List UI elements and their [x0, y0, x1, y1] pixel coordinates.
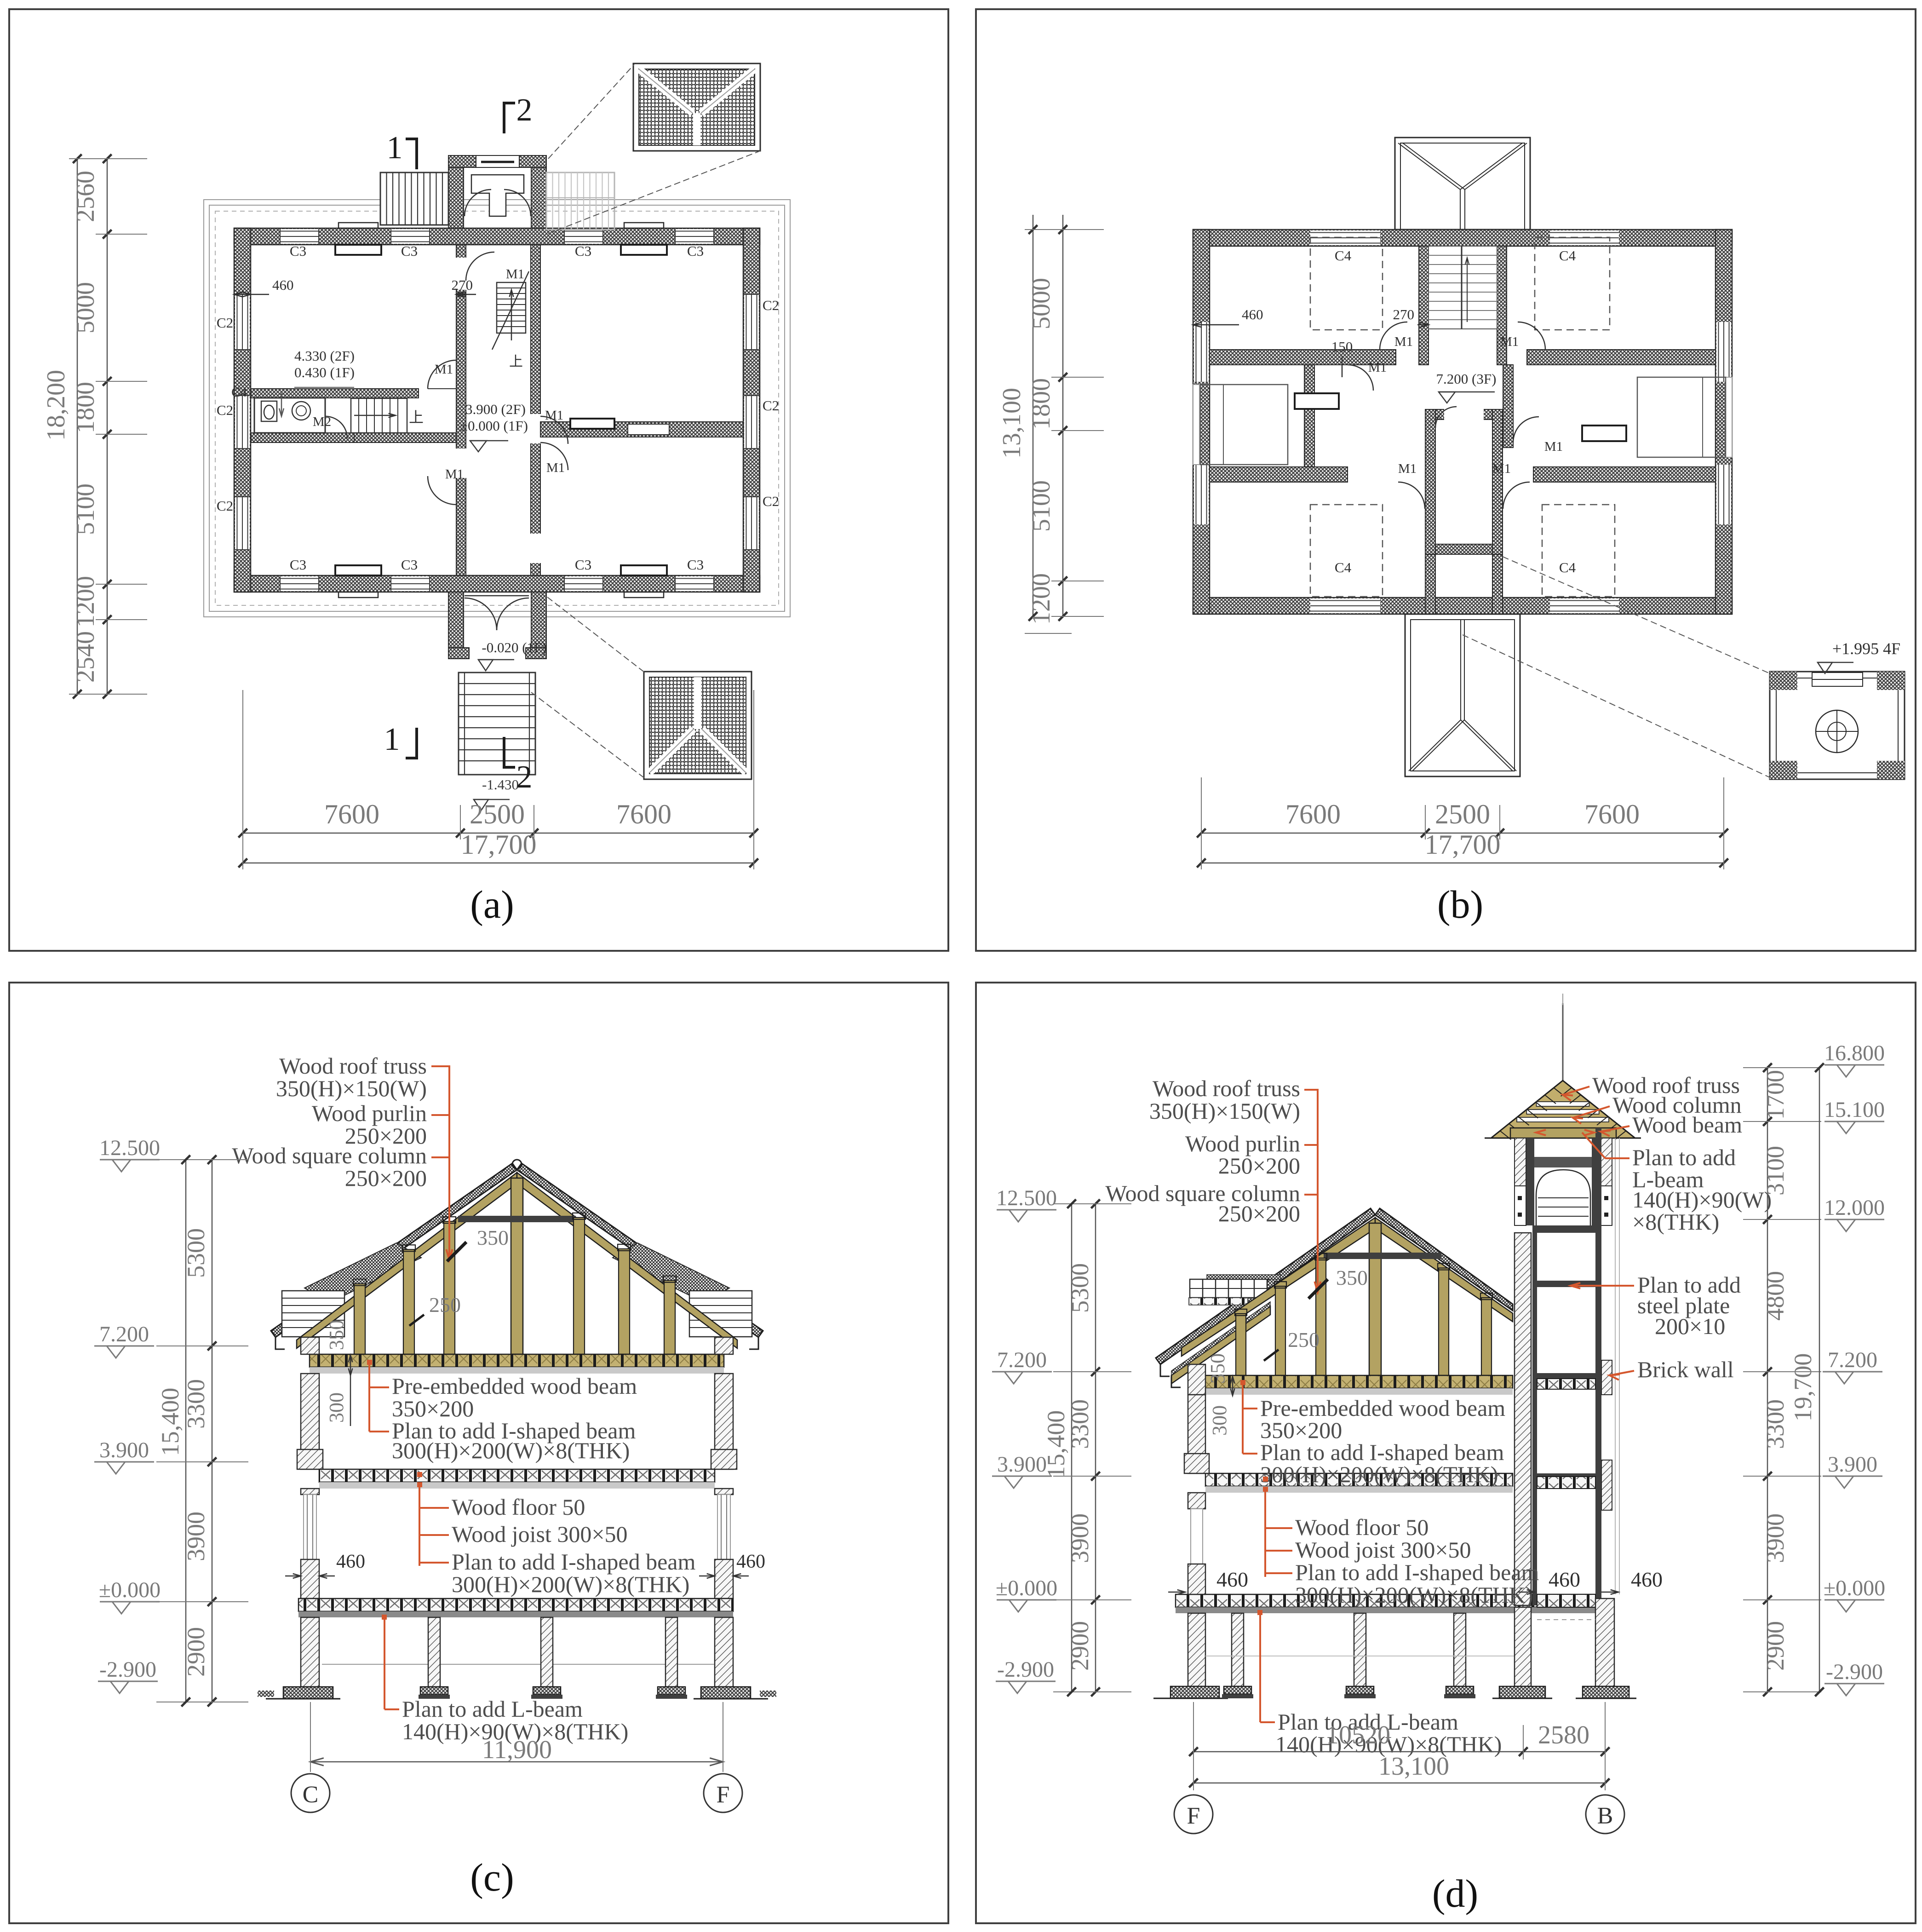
svg-text:5300: 5300	[1066, 1263, 1094, 1313]
svg-text:2500: 2500	[470, 799, 525, 829]
svg-text:15,400: 15,400	[156, 1388, 184, 1456]
svg-text:460: 460	[272, 277, 294, 293]
svg-text:Wood floor 50: Wood floor 50	[1295, 1514, 1429, 1540]
svg-text:3.900 (2F): 3.900 (2F)	[465, 401, 526, 417]
svg-text:5000: 5000	[71, 282, 100, 333]
svg-text:C2: C2	[217, 498, 233, 514]
svg-text:4800: 4800	[1761, 1271, 1789, 1321]
svg-text:12.500: 12.500	[996, 1186, 1057, 1210]
svg-text:3300: 3300	[1761, 1399, 1789, 1449]
svg-text:2: 2	[516, 759, 533, 795]
svg-text:300(H)×200(W)×8(THK): 300(H)×200(W)×8(THK)	[1295, 1582, 1533, 1608]
svg-text:3900: 3900	[1761, 1513, 1789, 1563]
svg-text:Plan to add L-beam: Plan to add L-beam	[402, 1696, 583, 1722]
svg-text:M1: M1	[1544, 439, 1563, 454]
svg-text:2900: 2900	[1066, 1621, 1094, 1671]
svg-text:C3: C3	[575, 557, 591, 573]
svg-text:460: 460	[1242, 306, 1263, 322]
svg-text:16.800: 16.800	[1824, 1041, 1885, 1065]
svg-text:2560: 2560	[71, 171, 100, 222]
svg-text:C2: C2	[763, 397, 779, 414]
svg-text:7.200 (3F): 7.200 (3F)	[1436, 371, 1497, 387]
svg-text:460: 460	[1631, 1568, 1663, 1591]
svg-text:7.200: 7.200	[99, 1322, 149, 1346]
svg-text:×8(THK): ×8(THK)	[1632, 1209, 1719, 1235]
svg-text:1200: 1200	[71, 576, 100, 627]
svg-text:7600: 7600	[324, 799, 379, 829]
svg-text:±0.000 (1F): ±0.000 (1F)	[460, 418, 528, 434]
svg-text:M1: M1	[445, 467, 464, 482]
svg-text:17,700: 17,700	[461, 829, 537, 860]
svg-text:Wood beam: Wood beam	[1632, 1112, 1742, 1138]
svg-text:13,100: 13,100	[998, 388, 1026, 459]
svg-text:7600: 7600	[1285, 799, 1341, 829]
svg-text:12.500: 12.500	[99, 1136, 160, 1160]
svg-text:±0.000: ±0.000	[1824, 1576, 1885, 1600]
svg-text:1200: 1200	[1027, 573, 1056, 625]
svg-text:M1: M1	[1394, 334, 1413, 349]
svg-text:7600: 7600	[616, 799, 671, 829]
svg-text:上: 上	[409, 409, 424, 425]
svg-text:4.330 (2F): 4.330 (2F)	[294, 348, 355, 364]
svg-text:M2: M2	[313, 414, 331, 429]
svg-text:350: 350	[1206, 1353, 1229, 1384]
svg-text:3300: 3300	[1066, 1399, 1094, 1449]
svg-text:C2: C2	[217, 315, 233, 331]
svg-text:±0.000: ±0.000	[99, 1578, 161, 1602]
svg-text:Plan to add I-shaped beam: Plan to add I-shaped beam	[1295, 1559, 1539, 1585]
svg-text:250×200: 250×200	[1218, 1201, 1300, 1226]
svg-text:Wood roof truss: Wood roof truss	[1153, 1075, 1300, 1101]
svg-text:250: 250	[1288, 1328, 1320, 1351]
svg-text:150: 150	[1331, 339, 1353, 355]
svg-text:C3: C3	[290, 557, 306, 573]
svg-text:300(H)×200(W)×8(THK): 300(H)×200(W)×8(THK)	[1260, 1461, 1498, 1487]
svg-text:3.900: 3.900	[1828, 1452, 1877, 1477]
svg-text:3.900: 3.900	[99, 1438, 149, 1462]
svg-text:350(H)×150(W): 350(H)×150(W)	[276, 1075, 427, 1101]
svg-text:300(H)×200(W)×8(THK): 300(H)×200(W)×8(THK)	[392, 1437, 630, 1463]
svg-text:1: 1	[387, 130, 403, 166]
svg-text:2500: 2500	[1435, 799, 1490, 829]
svg-text:13,100: 13,100	[1378, 1752, 1449, 1781]
svg-text:250: 250	[429, 1293, 461, 1317]
svg-text:(b): (b)	[1437, 882, 1483, 926]
svg-text:上: 上	[509, 354, 523, 369]
svg-text:F: F	[1187, 1803, 1200, 1829]
svg-text:3100: 3100	[1761, 1146, 1789, 1196]
svg-text:C4: C4	[1559, 559, 1576, 575]
svg-text:350: 350	[477, 1226, 509, 1249]
svg-text:Wood square column: Wood square column	[232, 1143, 427, 1168]
svg-text:460: 460	[736, 1551, 765, 1572]
svg-text:5100: 5100	[1027, 480, 1056, 532]
svg-text:0.430 (1F): 0.430 (1F)	[294, 364, 355, 380]
svg-text:M1: M1	[546, 460, 565, 475]
svg-text:7.200: 7.200	[997, 1348, 1047, 1372]
svg-text:M1: M1	[1368, 360, 1387, 375]
svg-text:270: 270	[1393, 306, 1415, 322]
svg-text:2900: 2900	[182, 1627, 210, 1677]
svg-text:12.000: 12.000	[1824, 1196, 1885, 1220]
svg-text:M1: M1	[1492, 461, 1511, 476]
svg-text:M1: M1	[545, 408, 563, 423]
svg-text:11,900: 11,900	[482, 1736, 552, 1764]
svg-text:-2.900: -2.900	[997, 1657, 1054, 1682]
svg-text:270: 270	[452, 277, 473, 293]
svg-text:C4: C4	[1559, 247, 1576, 264]
svg-text:2580: 2580	[1538, 1721, 1589, 1749]
svg-text:2: 2	[516, 92, 533, 128]
svg-text:300: 300	[1208, 1405, 1231, 1436]
svg-text:B: B	[1597, 1803, 1613, 1829]
svg-text:15,400: 15,400	[1042, 1410, 1070, 1479]
svg-text:18,200: 18,200	[42, 370, 70, 441]
svg-text:±0.000: ±0.000	[996, 1576, 1057, 1600]
svg-text:1800: 1800	[1027, 378, 1056, 430]
svg-text:-2.900: -2.900	[99, 1657, 156, 1682]
svg-text:+1.995 4F: +1.995 4F	[1832, 639, 1900, 658]
svg-text:C3: C3	[290, 243, 306, 259]
svg-text:7.200: 7.200	[1828, 1348, 1877, 1372]
svg-text:M1: M1	[506, 267, 524, 282]
svg-text:5000: 5000	[1027, 278, 1056, 329]
svg-text:3.900: 3.900	[997, 1452, 1047, 1477]
svg-text:C3: C3	[687, 243, 704, 259]
svg-text:250×200: 250×200	[345, 1165, 427, 1191]
svg-text:(c): (c)	[470, 1855, 514, 1899]
svg-text:C3: C3	[575, 243, 591, 259]
svg-text:300: 300	[325, 1392, 348, 1423]
svg-text:Wood roof truss: Wood roof truss	[279, 1053, 427, 1079]
svg-text:1: 1	[384, 722, 400, 757]
svg-text:17,700: 17,700	[1425, 829, 1501, 860]
svg-text:-0.020 (1F): -0.020 (1F)	[482, 639, 546, 655]
svg-text:300(H)×200(W)×8(THK): 300(H)×200(W)×8(THK)	[452, 1571, 689, 1597]
svg-text:Brick wall: Brick wall	[1637, 1357, 1734, 1382]
svg-text:5100: 5100	[71, 483, 100, 535]
svg-text:Wood purlin: Wood purlin	[312, 1100, 427, 1126]
svg-text:C2: C2	[763, 493, 779, 509]
svg-text:Wood floor 50: Wood floor 50	[452, 1494, 585, 1520]
svg-text:C: C	[303, 1782, 319, 1808]
svg-text:2900: 2900	[1761, 1621, 1789, 1671]
svg-text:1800: 1800	[71, 382, 100, 433]
svg-text:10520: 10520	[1326, 1721, 1390, 1749]
svg-text:C3: C3	[687, 557, 704, 573]
svg-text:2540: 2540	[71, 631, 100, 683]
svg-text:3900: 3900	[1066, 1513, 1094, 1563]
svg-text:460: 460	[1549, 1568, 1580, 1591]
svg-text:350: 350	[1336, 1266, 1368, 1289]
svg-text:Wood joist 300×50: Wood joist 300×50	[1295, 1537, 1471, 1563]
svg-text:Wood joist 300×50: Wood joist 300×50	[452, 1521, 628, 1547]
svg-text:1700: 1700	[1761, 1070, 1789, 1120]
svg-text:C2: C2	[217, 402, 233, 418]
svg-text:M1: M1	[1500, 334, 1519, 349]
svg-text:-1.430: -1.430	[482, 776, 519, 793]
svg-text:C4: C4	[1335, 559, 1352, 575]
svg-text:200×10: 200×10	[1655, 1313, 1725, 1339]
svg-text:5300: 5300	[182, 1228, 210, 1278]
svg-text:(d): (d)	[1432, 1871, 1478, 1915]
svg-text:Pre-embedded wood beam: Pre-embedded wood beam	[392, 1373, 637, 1399]
svg-text:Plan to add I-shaped beam: Plan to add I-shaped beam	[452, 1549, 696, 1575]
svg-text:C3: C3	[401, 243, 418, 259]
svg-text:350: 350	[325, 1320, 348, 1350]
svg-text:3900: 3900	[182, 1512, 210, 1561]
svg-text:19,700: 19,700	[1789, 1353, 1817, 1422]
svg-text:C4: C4	[231, 385, 247, 400]
svg-text:C3: C3	[401, 557, 418, 573]
svg-text:7600: 7600	[1584, 799, 1640, 829]
svg-text:C2: C2	[763, 297, 779, 313]
svg-text:460: 460	[1216, 1568, 1248, 1591]
svg-text:350(H)×150(W): 350(H)×150(W)	[1149, 1098, 1300, 1124]
svg-text:460: 460	[336, 1551, 365, 1572]
svg-text:15.100: 15.100	[1824, 1098, 1885, 1122]
svg-text:C4: C4	[1335, 247, 1352, 264]
svg-text:F: F	[717, 1782, 730, 1808]
svg-text:(a): (a)	[470, 882, 514, 926]
svg-text:-2.900: -2.900	[1826, 1660, 1883, 1684]
svg-text:M1: M1	[435, 362, 453, 377]
svg-text:250×200: 250×200	[1218, 1153, 1300, 1179]
svg-text:M1: M1	[1398, 461, 1417, 476]
svg-text:3300: 3300	[182, 1379, 210, 1429]
